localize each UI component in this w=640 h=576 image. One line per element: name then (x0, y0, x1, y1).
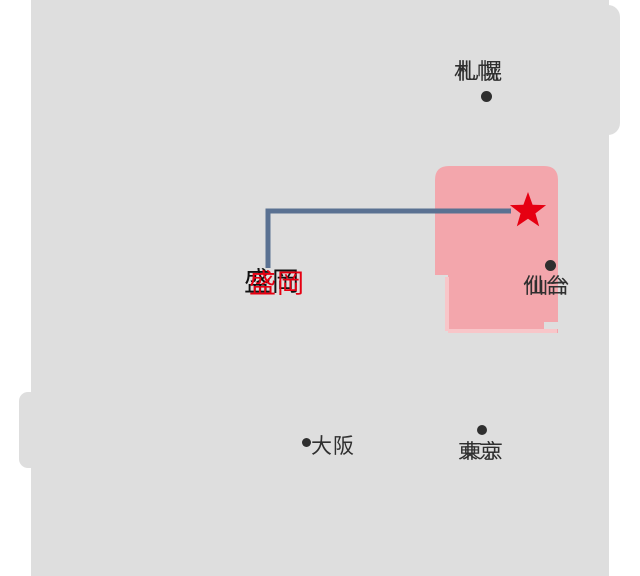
city-label-tokyo: 東京 (462, 441, 504, 461)
japan-map[interactable]: 札幌 盛岡 仙台 東京 大阪 (0, 0, 640, 576)
city-dot-tokyo (477, 425, 487, 435)
city-label-osaka: 大阪 (311, 436, 355, 457)
city-dot-sendai (545, 260, 556, 271)
landmass-bump-west (19, 392, 39, 468)
city-dot-sapporo (481, 91, 492, 102)
city-label-sendai: 仙台 (527, 276, 571, 297)
city-dot-osaka (302, 438, 311, 447)
highlighted-region-fringe-left (445, 277, 449, 331)
highlighted-region-fringe-bottom (448, 329, 557, 333)
landmass-bump-northeast (588, 5, 620, 135)
city-label-morioka-answer: 盛岡 (249, 271, 305, 298)
highlighted-region[interactable] (435, 166, 558, 333)
city-label-sapporo: 札幌 (457, 62, 503, 84)
